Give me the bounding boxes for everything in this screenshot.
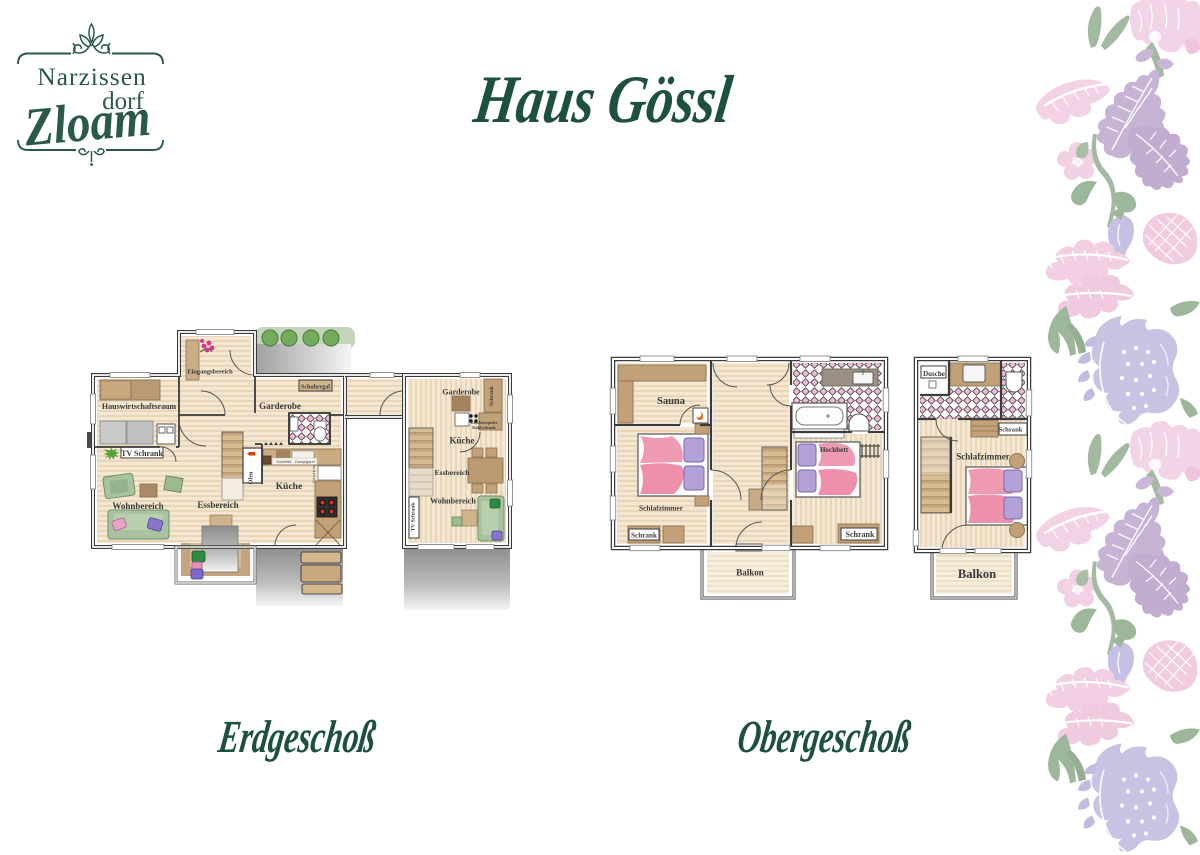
svg-text:Balkon: Balkon <box>736 568 764 578</box>
svg-text:TV Schrank: TV Schrank <box>411 502 417 532</box>
svg-text:Ofen: Ofen <box>249 471 255 484</box>
svg-text:Narzissen: Narzissen <box>37 62 147 91</box>
svg-text:Schrank: Schrank <box>489 385 495 406</box>
svg-text:Hauswirtschaftsraum: Hauswirtschaftsraum <box>102 402 177 411</box>
svg-text:Essbereich: Essbereich <box>435 468 471 477</box>
svg-text:Erdgeschoß: Erdgeschoß <box>215 711 379 762</box>
svg-text:Schlafzimmer: Schlafzimmer <box>639 504 684 513</box>
svg-text:Sauna: Sauna <box>657 396 686 407</box>
svg-text:Wohnbereich: Wohnbereich <box>430 497 476 506</box>
svg-text:Küche: Küche <box>449 436 474 446</box>
svg-text:Dampfgarer: Dampfgarer <box>295 460 316 464</box>
svg-text:Hochbett: Hochbett <box>820 446 849 454</box>
svg-text:Eingangsbereich: Eingangsbereich <box>187 369 233 376</box>
svg-text:Kochfeld: Kochfeld <box>277 460 292 464</box>
svg-text:Kühlschrank: Kühlschrank <box>472 425 496 430</box>
svg-text:Schlafzimmer: Schlafzimmer <box>956 452 1009 462</box>
svg-text:Dusche: Dusche <box>923 370 945 378</box>
svg-text:Schrank: Schrank <box>846 530 875 539</box>
svg-text:Garderobe: Garderobe <box>442 388 480 397</box>
svg-text:Obergeschoß: Obergeschoß <box>735 711 914 762</box>
svg-text:Schuhregal: Schuhregal <box>301 385 330 391</box>
svg-text:Küche: Küche <box>276 482 302 492</box>
svg-text:Balkon: Balkon <box>958 567 996 581</box>
svg-text:TV Schrank: TV Schrank <box>121 449 163 458</box>
svg-text:Garderobe: Garderobe <box>259 401 301 411</box>
svg-text:Essbereich: Essbereich <box>197 500 238 510</box>
svg-text:Schrank: Schrank <box>631 532 657 540</box>
svg-text:Haus Gössl: Haus Gössl <box>469 61 736 137</box>
svg-text:Zloam: Zloam <box>21 87 153 158</box>
svg-text:Schrank: Schrank <box>999 427 1023 434</box>
svg-text:Wohnbereich: Wohnbereich <box>112 501 163 511</box>
